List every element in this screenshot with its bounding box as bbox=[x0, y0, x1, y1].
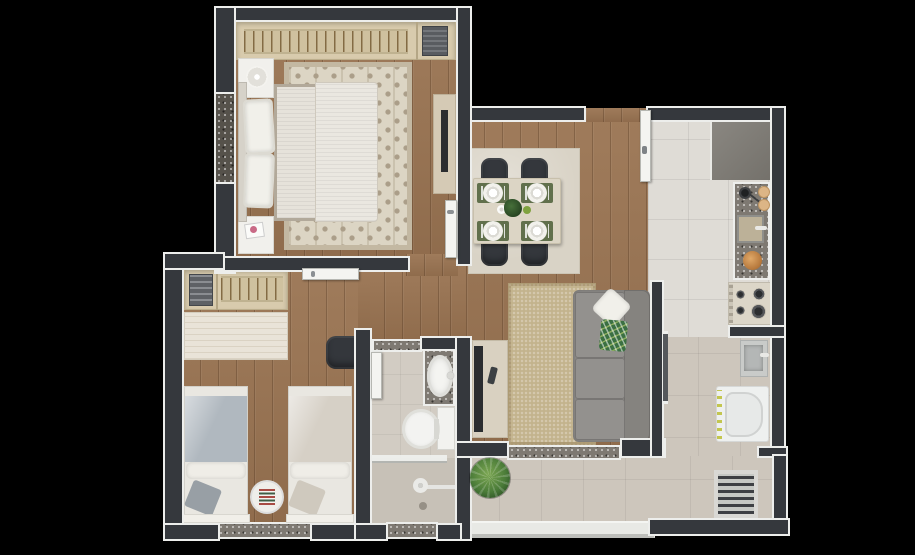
entrance-floor bbox=[585, 108, 646, 122]
wall bbox=[163, 252, 184, 541]
sofa-pillow-green bbox=[599, 319, 629, 352]
wall bbox=[214, 6, 470, 22]
tank-faucet bbox=[760, 353, 769, 357]
second-bedroom-window-sill bbox=[216, 522, 314, 539]
wall bbox=[354, 523, 388, 541]
single-bed-pillow bbox=[290, 462, 350, 479]
bed-pillow bbox=[243, 98, 276, 154]
single-bed-footboard bbox=[286, 514, 354, 523]
master-bedroom-window bbox=[214, 92, 236, 186]
bathroom-window-sill bbox=[386, 522, 438, 539]
door-handle bbox=[642, 146, 647, 154]
counter-cabinet bbox=[710, 122, 770, 180]
balcony-glass-parapet bbox=[455, 521, 655, 538]
wall bbox=[470, 106, 586, 122]
desk bbox=[184, 312, 288, 360]
shower-head bbox=[413, 478, 428, 493]
shower-glass-screen bbox=[370, 455, 447, 463]
burner bbox=[753, 288, 765, 300]
wall bbox=[354, 328, 372, 541]
storage-basket bbox=[422, 26, 448, 56]
decor-tray bbox=[246, 66, 268, 88]
double-bed-duvet bbox=[315, 82, 378, 222]
sofa-seat-cushion bbox=[575, 358, 625, 399]
cutting-board bbox=[758, 199, 770, 211]
wall bbox=[648, 518, 790, 536]
washer-lid bbox=[725, 392, 763, 437]
potted-plant bbox=[470, 458, 510, 498]
wall bbox=[214, 6, 236, 96]
floor-drain bbox=[419, 502, 427, 510]
burner bbox=[751, 304, 766, 319]
toilet-hinge bbox=[434, 419, 439, 439]
faucet bbox=[447, 372, 454, 379]
round-rug-pattern bbox=[259, 489, 275, 505]
single-bed-pillow bbox=[186, 462, 246, 479]
wardrobe-hangers bbox=[244, 29, 408, 54]
burner bbox=[736, 306, 745, 315]
wall bbox=[728, 325, 786, 338]
single-bed-footboard bbox=[182, 514, 250, 523]
sofa-seat-cushion bbox=[575, 399, 625, 440]
fruit-bowl bbox=[743, 251, 762, 270]
wardrobe-divider bbox=[216, 268, 218, 310]
wall bbox=[455, 336, 472, 541]
door-handle bbox=[447, 210, 454, 214]
wall bbox=[770, 106, 786, 456]
wall bbox=[163, 523, 220, 541]
single-bed-blanket bbox=[185, 396, 247, 462]
sink-faucet bbox=[755, 226, 767, 230]
burner bbox=[736, 290, 745, 299]
balcony-door-threshold bbox=[507, 445, 621, 460]
tv-panel bbox=[441, 110, 448, 172]
wall bbox=[455, 441, 509, 458]
bed-pillow bbox=[243, 152, 275, 208]
centerpiece-plant bbox=[504, 199, 522, 217]
master-bedroom-door bbox=[445, 200, 457, 258]
shower-floor bbox=[370, 458, 457, 525]
cooktop-controls bbox=[729, 284, 733, 323]
wall bbox=[650, 280, 664, 458]
floor-plan bbox=[0, 0, 915, 555]
wall bbox=[772, 454, 788, 522]
washer-control-panel bbox=[717, 390, 722, 439]
cooktop bbox=[728, 282, 771, 325]
sliding-door bbox=[663, 331, 668, 404]
plate bbox=[527, 221, 547, 241]
door-handle bbox=[311, 271, 315, 277]
shower-arm bbox=[426, 485, 455, 489]
table-decor bbox=[523, 206, 531, 214]
louvered-heater-cabinet bbox=[714, 470, 758, 518]
sofa-backrest bbox=[624, 290, 650, 442]
folded-clothes bbox=[189, 274, 213, 306]
single-bed-blanket bbox=[289, 396, 351, 462]
magazine-decor bbox=[250, 226, 257, 233]
wall bbox=[646, 106, 786, 122]
tv-panel bbox=[474, 346, 483, 432]
bathroom-door bbox=[371, 352, 382, 399]
wardrobe-hangers bbox=[221, 276, 283, 302]
wall bbox=[163, 252, 225, 270]
plate bbox=[527, 183, 547, 203]
wall bbox=[436, 523, 462, 541]
bathroom-door-threshold bbox=[372, 339, 422, 352]
wall bbox=[310, 523, 358, 541]
plate bbox=[483, 221, 503, 241]
wardrobe-divider bbox=[416, 20, 418, 60]
laundry-tank-basin bbox=[744, 345, 763, 371]
wall bbox=[456, 6, 472, 266]
plate bbox=[483, 183, 503, 203]
cutting-board bbox=[758, 186, 770, 198]
double-bed-blanket bbox=[274, 84, 318, 221]
